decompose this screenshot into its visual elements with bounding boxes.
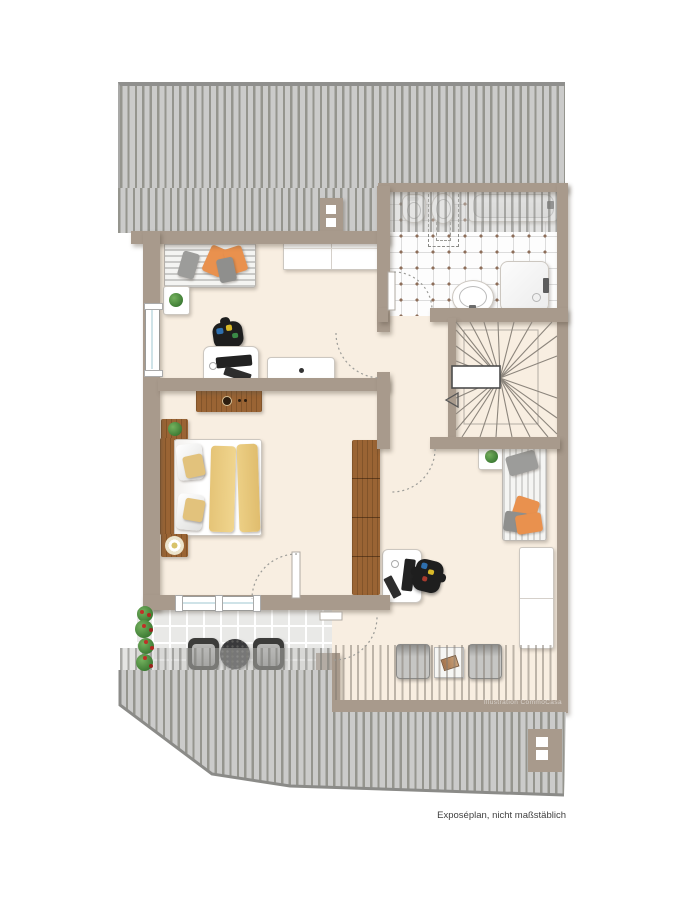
living-door-arc bbox=[392, 449, 435, 492]
floorplan-canvas: Illustration CommoCasa Exposéplan, nicht… bbox=[0, 0, 678, 900]
stair-direction-arrow-icon bbox=[446, 393, 458, 407]
linework-overlay bbox=[0, 0, 678, 900]
living-terrace-door-leaf bbox=[320, 612, 342, 620]
roof-edge-line bbox=[120, 670, 564, 795]
bathroom-door-leaf bbox=[388, 272, 395, 310]
bathroom-door-arc bbox=[394, 272, 432, 310]
caption-not-to-scale: Exposéplan, nicht maßstäblich bbox=[437, 810, 566, 821]
office-door-arc bbox=[336, 333, 381, 378]
door-arcs bbox=[252, 272, 435, 660]
living-terrace-door-arc bbox=[334, 617, 377, 660]
door-leaves bbox=[292, 272, 395, 620]
staircase bbox=[446, 322, 557, 437]
bedroom-terrace-door-arc bbox=[252, 554, 297, 599]
bedroom-terrace-door-leaf bbox=[292, 552, 300, 598]
watermark: Illustration CommoCasa bbox=[462, 699, 562, 706]
stair-landing bbox=[452, 366, 500, 388]
